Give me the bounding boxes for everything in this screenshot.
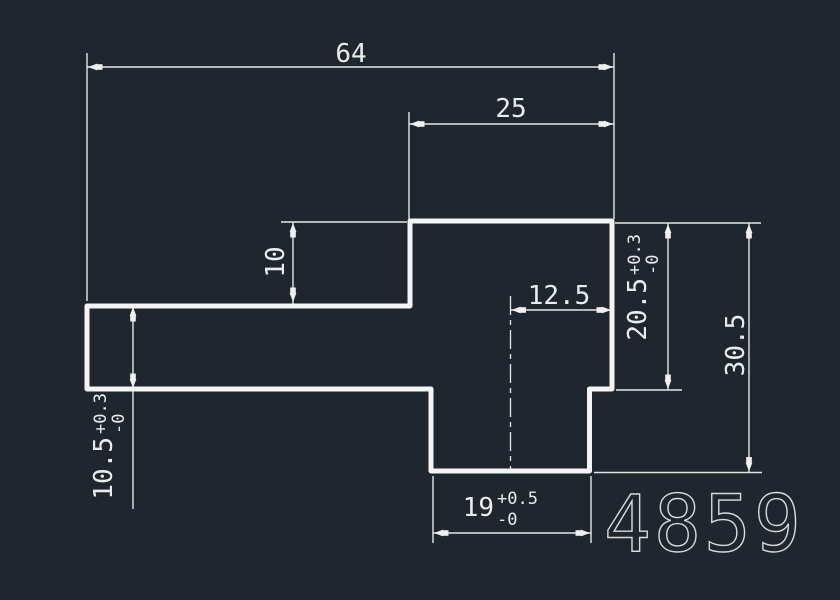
dim-text-right-offset: 12.5 bbox=[528, 281, 591, 311]
dim-text-step-depth: 10 bbox=[261, 246, 291, 277]
arrowhead-icon bbox=[576, 530, 591, 537]
arrowhead-icon bbox=[512, 307, 527, 314]
dim-tolerance-minus: -0 bbox=[497, 510, 517, 530]
dim-text-tab-width: 19 +0.5 -0 bbox=[463, 489, 538, 530]
dim-tolerance-plus: +0.3 bbox=[91, 393, 111, 434]
part-outline bbox=[87, 221, 612, 471]
arrowhead-icon bbox=[434, 530, 449, 537]
part-number: 4859 bbox=[604, 480, 804, 570]
dim-text-right-height: 20.5 +0.3 -0 bbox=[623, 234, 663, 341]
dim-tolerance-minus: -0 bbox=[643, 255, 663, 275]
arrowhead-icon bbox=[88, 64, 103, 71]
dim-text-overall-height: 30.5 bbox=[721, 314, 751, 377]
arrowhead-icon bbox=[599, 64, 614, 71]
dim-tolerance-plus: +0.3 bbox=[625, 234, 645, 275]
dim-text-arm-height: 10.5 +0.3 -0 bbox=[89, 393, 129, 500]
arrowhead-icon bbox=[130, 374, 137, 389]
dim-value: 19 bbox=[463, 493, 494, 523]
cad-viewport: 64 25 10 12.5 20.5 +0.3 -0 30.5 10.5 +0.… bbox=[0, 0, 840, 600]
arrowhead-icon bbox=[665, 224, 672, 239]
dim-tolerance-minus: -0 bbox=[109, 414, 129, 434]
arrowhead-icon bbox=[746, 224, 753, 239]
arrowhead-icon bbox=[746, 457, 753, 472]
cad-drawing: 64 25 10 12.5 20.5 +0.3 -0 30.5 10.5 +0.… bbox=[0, 0, 840, 600]
arrowhead-icon bbox=[290, 223, 297, 238]
arrowhead-icon bbox=[410, 121, 425, 128]
dim-tolerance-plus: +0.5 bbox=[497, 489, 538, 509]
dim-text-total-width: 64 bbox=[335, 39, 366, 69]
arrowhead-icon bbox=[597, 307, 612, 314]
dim-text-top-width: 25 bbox=[495, 94, 526, 124]
dim-value: 10.5 bbox=[89, 437, 119, 500]
arrowhead-icon bbox=[599, 121, 614, 128]
arrowhead-icon bbox=[665, 375, 672, 390]
dim-value: 20.5 bbox=[623, 278, 653, 341]
arrowhead-icon bbox=[290, 288, 297, 303]
arrowhead-icon bbox=[130, 307, 137, 322]
